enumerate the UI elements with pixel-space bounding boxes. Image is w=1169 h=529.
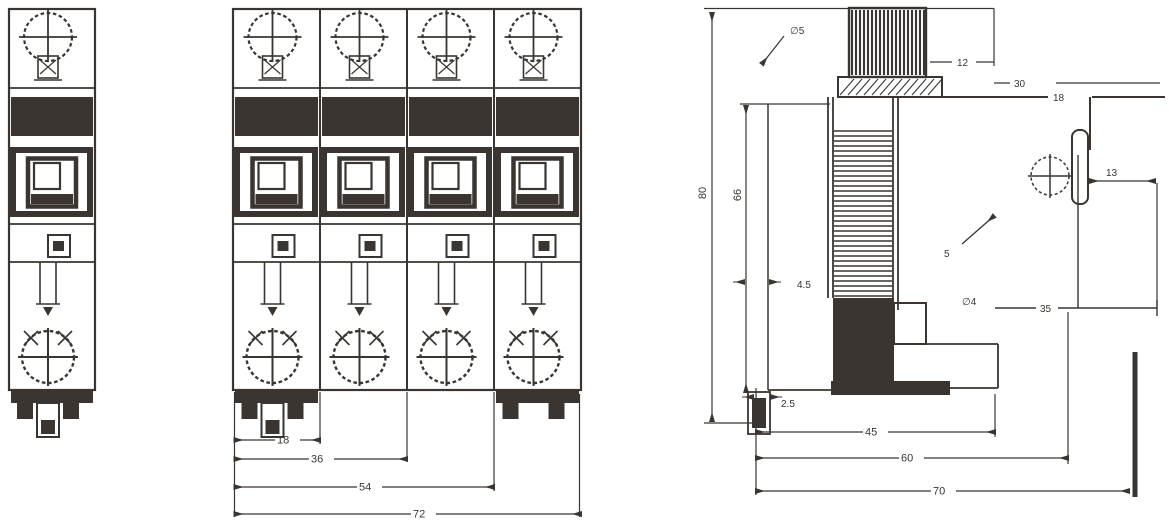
svg-text:60: 60 xyxy=(901,453,913,465)
svg-text:45: 45 xyxy=(865,427,877,439)
svg-text:36: 36 xyxy=(311,454,323,466)
svg-text:70: 70 xyxy=(933,486,945,498)
svg-text:66: 66 xyxy=(732,189,744,201)
svg-text:80: 80 xyxy=(697,187,709,199)
svg-text:30: 30 xyxy=(1014,79,1026,90)
svg-text:72: 72 xyxy=(413,509,425,521)
svg-text:54: 54 xyxy=(359,482,371,494)
svg-text:4.5: 4.5 xyxy=(797,280,811,291)
svg-text:5: 5 xyxy=(944,249,950,260)
svg-text:13: 13 xyxy=(1106,168,1118,179)
svg-text:2.5: 2.5 xyxy=(781,399,795,410)
svg-text:18: 18 xyxy=(1053,93,1065,104)
svg-text:35: 35 xyxy=(1040,304,1052,315)
svg-text:12: 12 xyxy=(957,58,969,69)
svg-text:18: 18 xyxy=(277,435,289,447)
svg-text:∅5: ∅5 xyxy=(790,26,805,37)
svg-text:∅4: ∅4 xyxy=(962,297,977,308)
